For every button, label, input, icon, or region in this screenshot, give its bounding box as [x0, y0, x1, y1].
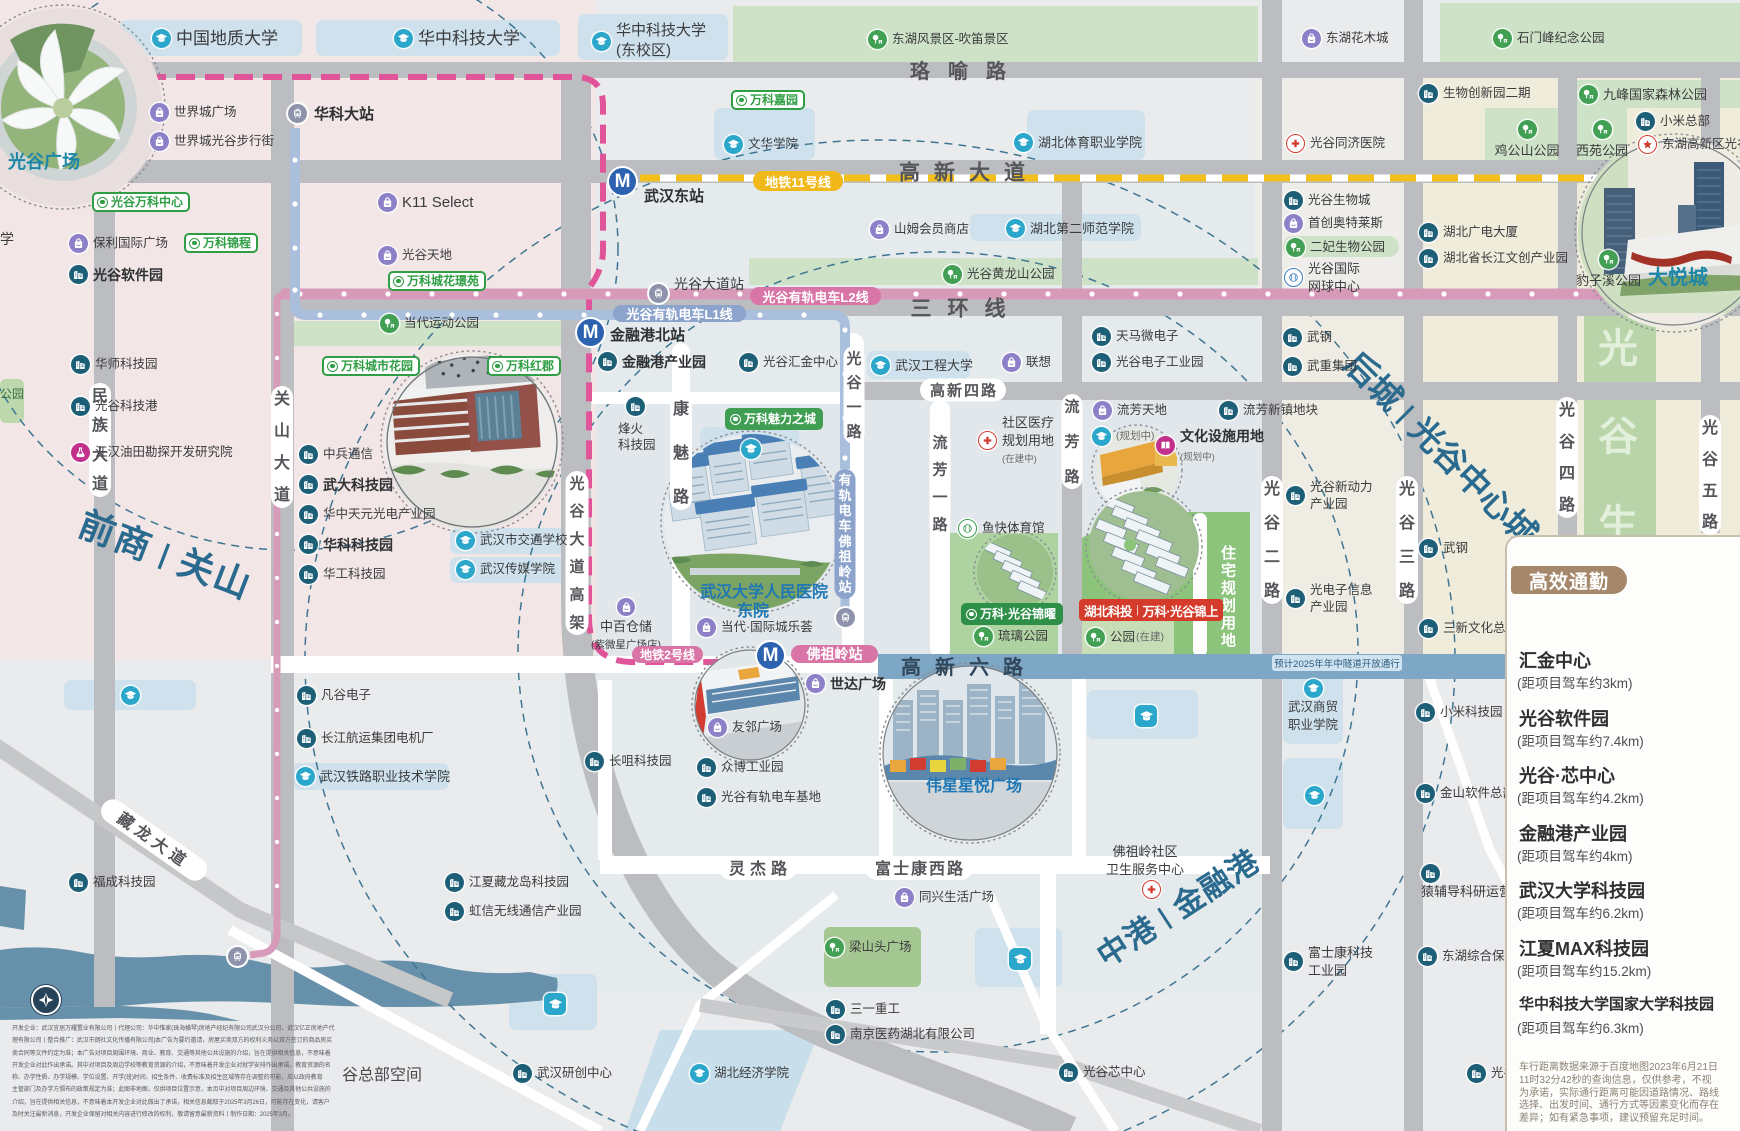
- svg-text:富: 富: [875, 859, 891, 878]
- svg-text:线: 线: [985, 297, 1006, 321]
- svg-text:光: 光: [1263, 479, 1280, 498]
- svg-text:架: 架: [568, 614, 584, 631]
- svg-text:佛: 佛: [837, 534, 851, 549]
- svg-text:路: 路: [1264, 581, 1281, 600]
- svg-text:路: 路: [1003, 655, 1024, 679]
- svg-text:珞: 珞: [910, 60, 931, 83]
- svg-text:喻: 喻: [948, 59, 969, 83]
- svg-text:流: 流: [932, 433, 947, 451]
- svg-text:关: 关: [274, 389, 290, 408]
- svg-text:宅: 宅: [1221, 562, 1236, 580]
- svg-text:谷: 谷: [846, 375, 862, 392]
- svg-text:车: 车: [838, 519, 851, 534]
- svg-text:山: 山: [274, 422, 290, 440]
- svg-text:路: 路: [1399, 581, 1416, 600]
- svg-text:道: 道: [274, 485, 290, 504]
- svg-text:谷: 谷: [1399, 514, 1416, 532]
- svg-text:康: 康: [673, 399, 690, 418]
- svg-text:大: 大: [969, 162, 990, 185]
- svg-text:路: 路: [846, 422, 862, 440]
- svg-text:住: 住: [1221, 544, 1236, 562]
- svg-text:五: 五: [1702, 483, 1718, 500]
- svg-text:灵: 灵: [729, 860, 746, 878]
- svg-text:四: 四: [1559, 465, 1575, 482]
- svg-text:新: 新: [934, 161, 955, 185]
- svg-text:有: 有: [838, 473, 851, 488]
- svg-text:路: 路: [981, 381, 997, 399]
- svg-text:西: 西: [929, 860, 945, 878]
- svg-text:高: 高: [901, 655, 921, 679]
- svg-text:四: 四: [964, 382, 979, 399]
- svg-text:路: 路: [986, 59, 1007, 83]
- svg-text:谷: 谷: [1702, 450, 1719, 468]
- svg-text:谷: 谷: [1598, 415, 1638, 459]
- svg-text:族: 族: [92, 415, 109, 434]
- svg-text:用: 用: [1221, 615, 1236, 632]
- svg-text:光: 光: [1558, 400, 1575, 419]
- svg-text:路: 路: [1064, 467, 1080, 485]
- svg-text:大: 大: [274, 453, 290, 472]
- svg-text:道: 道: [92, 474, 108, 493]
- svg-text:祖: 祖: [837, 549, 851, 564]
- svg-text:规: 规: [1221, 580, 1236, 597]
- svg-text:新: 新: [947, 381, 962, 399]
- svg-text:芳: 芳: [932, 461, 947, 479]
- svg-text:三: 三: [1399, 549, 1415, 566]
- svg-text:路: 路: [1559, 495, 1576, 514]
- svg-text:光: 光: [845, 349, 861, 367]
- svg-text:高: 高: [569, 586, 584, 604]
- svg-text:二: 二: [1264, 549, 1280, 566]
- svg-text:轨: 轨: [838, 488, 851, 503]
- svg-text:站: 站: [838, 580, 851, 595]
- svg-text:环: 环: [948, 298, 969, 321]
- svg-text:路: 路: [771, 859, 788, 878]
- svg-text:路: 路: [673, 487, 690, 506]
- svg-text:谷: 谷: [569, 503, 585, 520]
- svg-text:士: 士: [893, 859, 909, 878]
- svg-text:芳: 芳: [1064, 432, 1079, 450]
- svg-text:岭: 岭: [838, 564, 851, 579]
- svg-text:大: 大: [569, 530, 584, 548]
- svg-text:杰: 杰: [750, 859, 766, 878]
- svg-text:康: 康: [911, 859, 928, 878]
- svg-text:六: 六: [969, 656, 989, 679]
- svg-text:光: 光: [1701, 418, 1718, 437]
- svg-text:三: 三: [911, 298, 932, 321]
- svg-text:光: 光: [1598, 327, 1638, 371]
- svg-text:一: 一: [932, 489, 947, 506]
- svg-text:谷: 谷: [1264, 514, 1281, 532]
- svg-text:电: 电: [838, 503, 851, 518]
- svg-text:道: 道: [1004, 161, 1025, 185]
- svg-text:一: 一: [846, 399, 861, 416]
- svg-text:路: 路: [1702, 512, 1719, 531]
- svg-text:划: 划: [1221, 597, 1236, 615]
- svg-text:高: 高: [899, 161, 920, 185]
- svg-text:道: 道: [569, 558, 584, 576]
- svg-text:光: 光: [1398, 479, 1415, 498]
- svg-text:谷: 谷: [1559, 433, 1576, 451]
- svg-text:高: 高: [930, 381, 945, 399]
- svg-text:新: 新: [935, 655, 955, 679]
- svg-text:路: 路: [932, 515, 948, 533]
- svg-text:光: 光: [568, 474, 584, 492]
- svg-text:魅: 魅: [673, 443, 689, 462]
- svg-text:流: 流: [1064, 397, 1079, 415]
- svg-text:路: 路: [947, 859, 964, 878]
- svg-text:地: 地: [1221, 632, 1236, 650]
